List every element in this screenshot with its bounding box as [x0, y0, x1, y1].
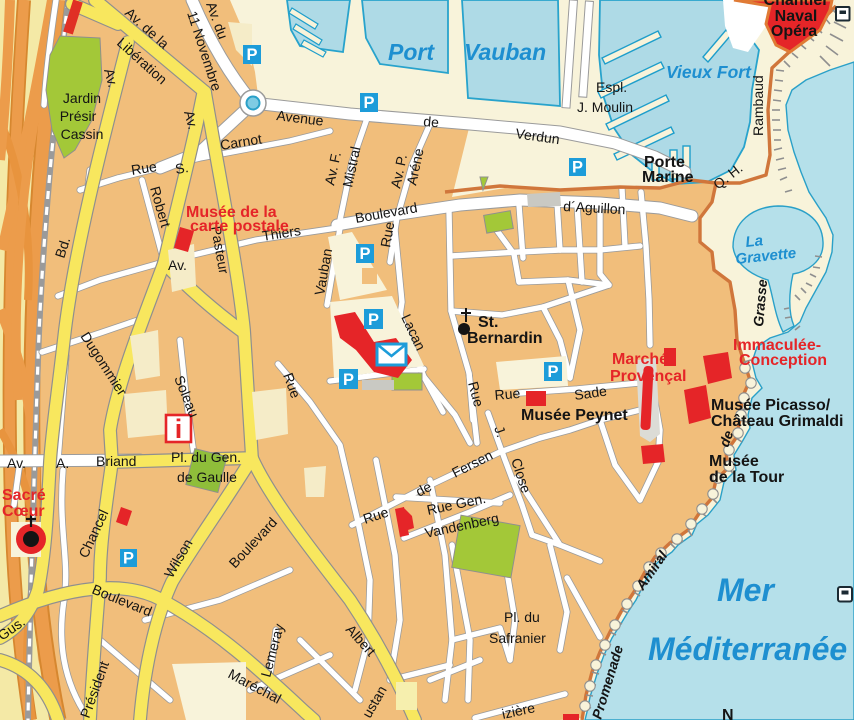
svg-text:de Gaulle: de Gaulle: [177, 469, 237, 485]
svg-text:Pl. du Gen.: Pl. du Gen.: [171, 449, 241, 465]
svg-text:Château Grimaldi: Château Grimaldi: [711, 413, 843, 430]
svg-text:P: P: [123, 550, 134, 568]
svg-text:Sacré: Sacré: [2, 487, 46, 504]
svg-text:P: P: [572, 159, 583, 177]
svg-text:Cœur: Cœur: [2, 503, 45, 520]
svg-text:Safranier: Safranier: [489, 630, 546, 646]
svg-text:Bernardin: Bernardin: [467, 330, 543, 347]
svg-text:P: P: [246, 46, 257, 64]
svg-text:Cassin: Cassin: [61, 126, 104, 142]
svg-text:Musée Peynet: Musée Peynet: [521, 407, 628, 424]
svg-text:d´Aguillon: d´Aguillon: [563, 198, 626, 217]
svg-text:Espl.: Espl.: [596, 79, 627, 95]
svg-text:Musée Picasso/: Musée Picasso/: [711, 397, 831, 414]
svg-text:Marine: Marine: [642, 169, 694, 186]
svg-text:carte postale: carte postale: [190, 218, 289, 235]
svg-text:P: P: [343, 371, 354, 389]
svg-text:Méditerranée: Méditerranée: [648, 631, 847, 667]
svg-text:Vauban: Vauban: [464, 39, 546, 65]
svg-text:Marché: Marché: [612, 351, 668, 368]
svg-text:P: P: [368, 311, 379, 329]
svg-text:P: P: [547, 363, 558, 381]
svg-text:Opéra: Opéra: [771, 23, 817, 40]
svg-text:A.: A.: [56, 455, 69, 471]
svg-text:Rue: Rue: [494, 385, 521, 403]
svg-text:St.: St.: [478, 314, 498, 331]
svg-text:J. Moulin: J. Moulin: [577, 99, 633, 115]
svg-text:Conception: Conception: [739, 352, 827, 369]
svg-text:P: P: [363, 94, 374, 112]
svg-text:Provençal: Provençal: [610, 368, 686, 385]
svg-text:Pl. du: Pl. du: [504, 609, 540, 625]
svg-text:i: i: [175, 414, 183, 444]
svg-text:Musée: Musée: [709, 453, 759, 470]
svg-text:S.: S.: [174, 159, 190, 177]
svg-text:Vieux Fort: Vieux Fort: [666, 62, 752, 82]
svg-text:de la Tour: de la Tour: [709, 469, 784, 486]
svg-text:Mer: Mer: [717, 572, 775, 608]
svg-text:Jardin: Jardin: [63, 90, 101, 106]
svg-text:Av.: Av.: [7, 455, 26, 471]
svg-text:Av.: Av.: [168, 257, 187, 273]
svg-text:de: de: [423, 113, 440, 130]
svg-text:N: N: [722, 707, 734, 720]
svg-text:Rambaud: Rambaud: [750, 75, 766, 136]
svg-text:Port: Port: [388, 39, 435, 65]
svg-text:P: P: [359, 245, 370, 263]
svg-text:Présir: Présir: [60, 108, 97, 124]
svg-text:Briand: Briand: [96, 453, 136, 469]
